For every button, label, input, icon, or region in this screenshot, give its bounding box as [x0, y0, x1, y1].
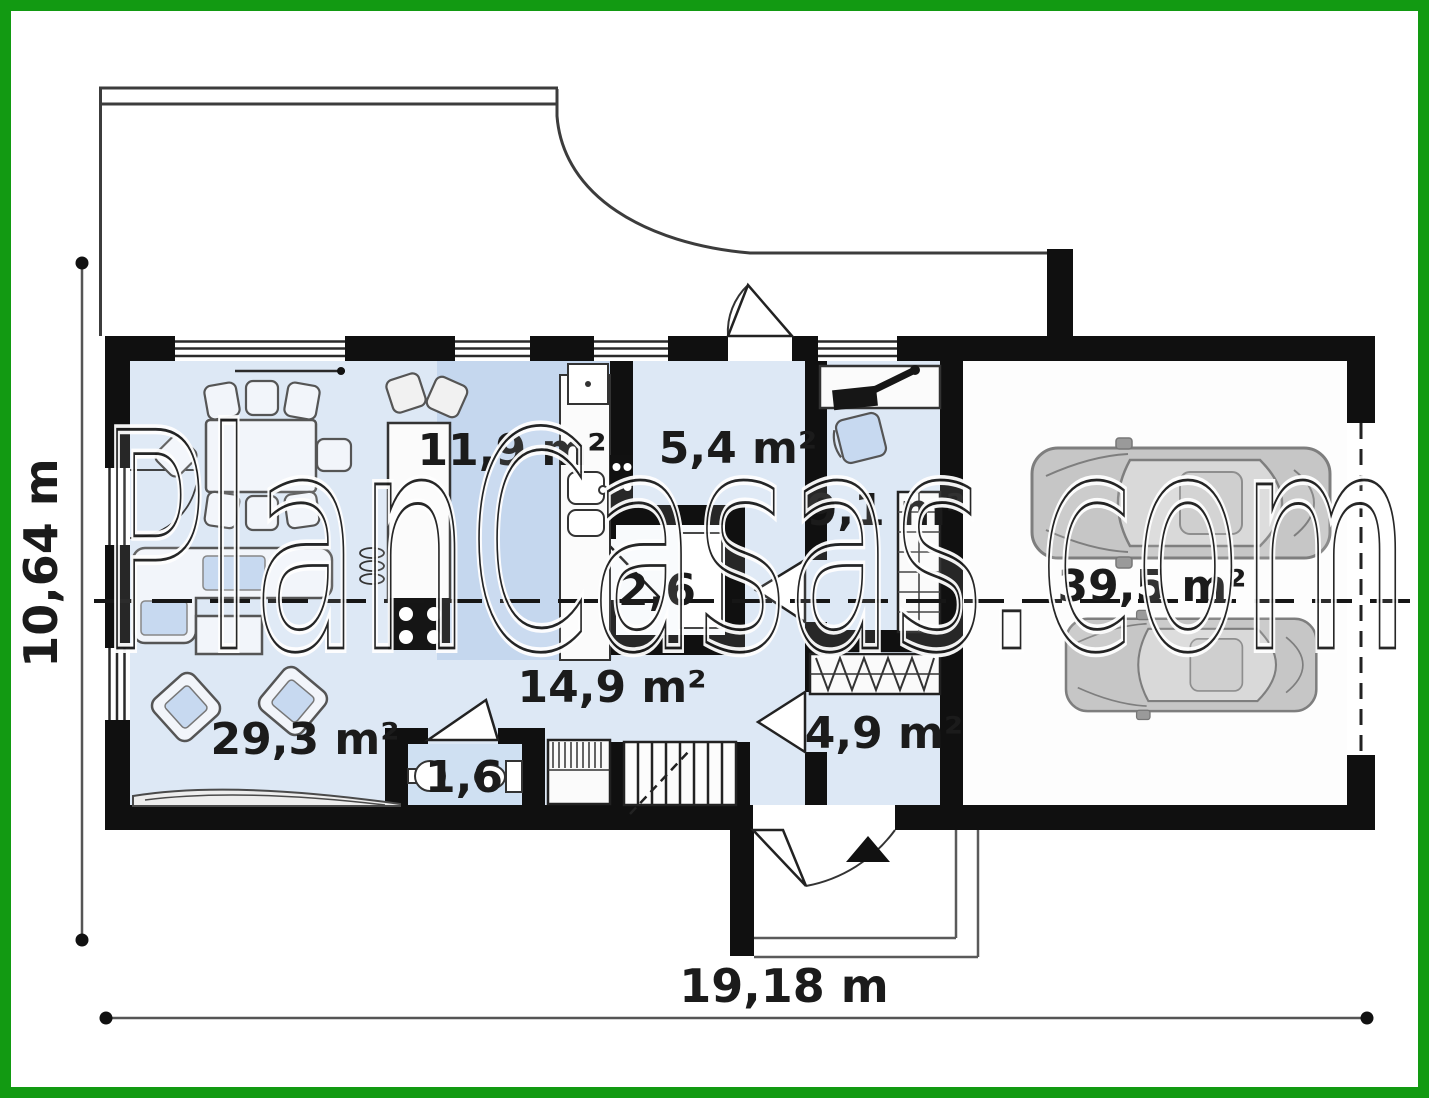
watermark-text: PlanCasas.com — [100, 370, 1410, 719]
horizontal-dimension: 19,18 m — [100, 959, 1374, 1025]
dimension-label-vertical: 10,64 m — [14, 458, 68, 667]
terrace-wall-stub — [1047, 249, 1073, 338]
kitchen-window — [455, 342, 530, 357]
hall-window — [594, 342, 668, 357]
entrance-door — [753, 830, 895, 886]
office-window — [818, 342, 897, 357]
porch-wall-stub — [730, 830, 754, 956]
floor-plan: 11,9 m² 5,4 m² 9,1 m² 2,6 14,9 m² 29,3 m… — [0, 0, 1429, 1098]
storage-cabinet — [548, 740, 610, 804]
room-label-wc: 1,6 — [425, 752, 503, 803]
terrace-door — [728, 285, 792, 336]
floor-plan-page: 11,9 m² 5,4 m² 9,1 m² 2,6 14,9 m² 29,3 m… — [0, 0, 1429, 1098]
room-label-living: 29,3 m² — [211, 714, 400, 765]
entrance-arrow-icon — [846, 836, 890, 862]
watermark: PlanCasas.com PlanCasas.com — [100, 370, 1410, 719]
stairs — [624, 742, 736, 814]
toilet-tank — [506, 761, 522, 792]
wc-right-wall — [522, 728, 545, 805]
terrace-curved-edge — [557, 89, 1047, 253]
garage-corner-bottom — [1347, 755, 1375, 830]
dimension-label-horizontal: 19,18 m — [679, 959, 888, 1013]
terrace — [99, 88, 1047, 336]
vertical-dimension: 10,64 m — [14, 257, 89, 947]
